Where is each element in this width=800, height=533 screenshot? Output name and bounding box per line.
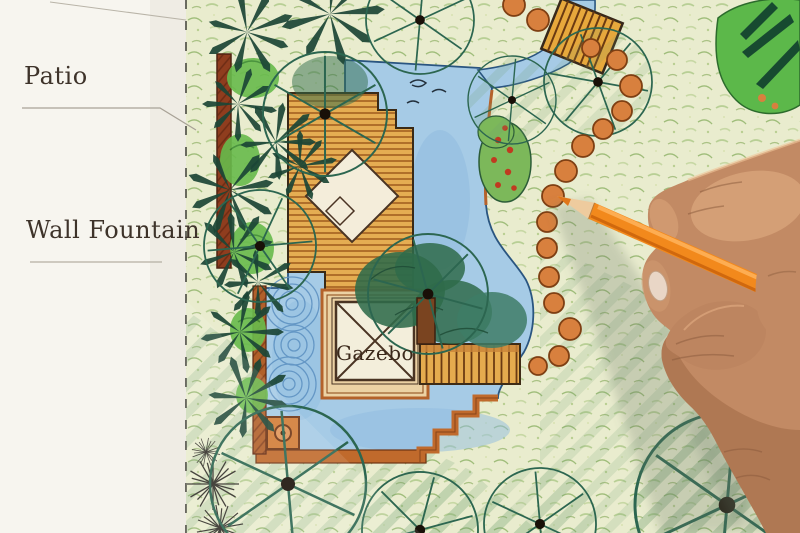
tree-trunk	[417, 298, 435, 344]
patio-label: Patio	[24, 62, 88, 90]
gazebo-label: Gazebo	[336, 341, 414, 365]
stepping-stone-pointed	[542, 185, 564, 207]
boardwalk	[420, 344, 520, 384]
landscape-plan-photo: Gazebo Patio Wall Fountain	[0, 0, 800, 533]
plan-drawing: Gazebo Patio Wall Fountain	[0, 0, 800, 533]
wall-fountain-label: Wall Fountain	[26, 216, 200, 244]
margin: Patio Wall Fountain	[0, 0, 200, 533]
